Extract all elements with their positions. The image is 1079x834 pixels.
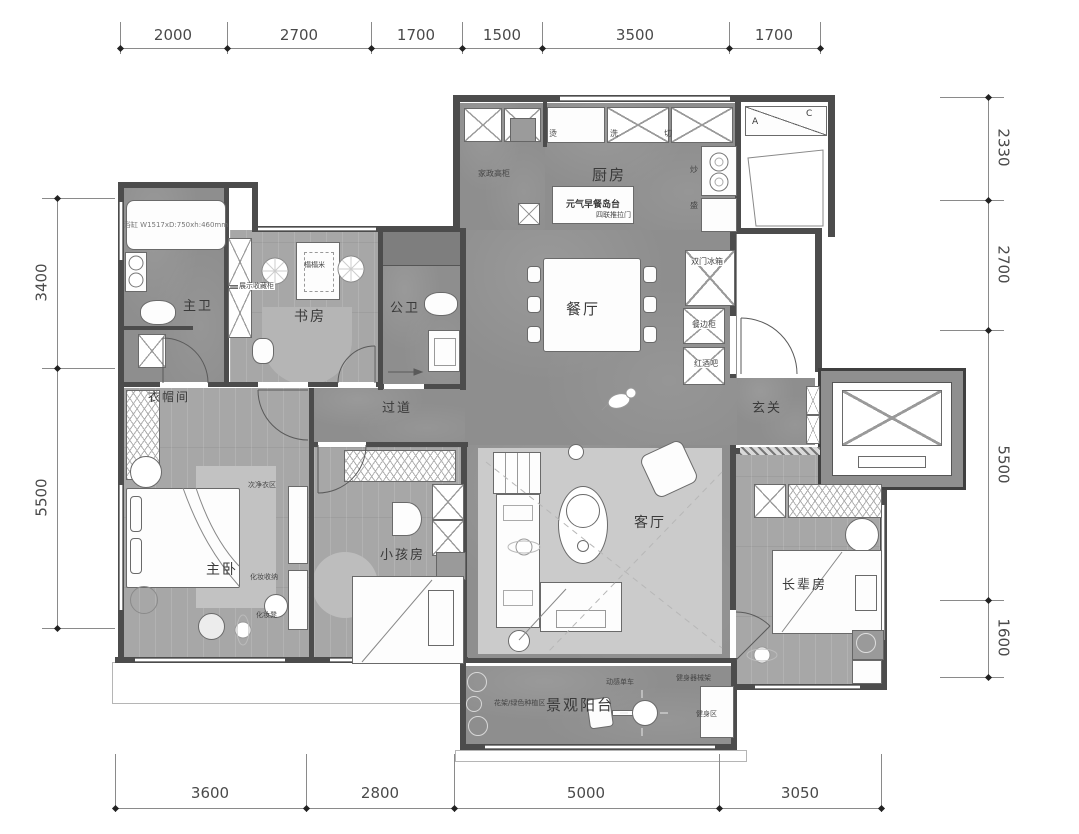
dim-ext <box>940 330 1004 331</box>
wall <box>815 232 822 372</box>
dim-ext <box>881 754 882 812</box>
door-gap <box>318 442 366 447</box>
dim-ext <box>115 754 116 812</box>
shoe-cabinet <box>806 415 820 444</box>
dim-value: 2000 <box>143 28 203 43</box>
dim-value: 2700 <box>269 28 329 43</box>
dim-ext <box>940 677 1004 678</box>
dim-value: 1500 <box>472 28 532 43</box>
bathtub-spec: 浴缸 W1517xD:750xh:460mm <box>124 222 228 229</box>
island-label: 元气早餐岛台 <box>566 201 620 210</box>
room-label-balcony: 景观阳台 <box>546 698 614 713</box>
room-label-elder-room: 长辈房 <box>782 579 827 592</box>
dresser <box>288 486 308 564</box>
dim-value: 2800 <box>350 786 410 801</box>
washer-box <box>464 108 502 142</box>
dim-tick <box>459 45 466 52</box>
dim-tick <box>54 625 61 632</box>
label-station-iron: 烫 <box>549 130 557 138</box>
label-ac-a: A <box>752 118 758 127</box>
dim-value: 1700 <box>744 28 804 43</box>
dim-tick <box>451 805 458 812</box>
kids-wardrobe <box>344 450 456 482</box>
wall <box>453 95 460 232</box>
elder-cabinet <box>754 484 786 518</box>
dim-tick <box>303 805 310 812</box>
study-chair <box>252 338 274 364</box>
dim-tick <box>985 197 992 204</box>
pillow <box>130 496 142 532</box>
dim-value: 5500 <box>996 435 1011 495</box>
plant <box>467 672 487 692</box>
display-cabinet <box>228 238 252 286</box>
dim-ext <box>719 754 720 812</box>
floor-plan-canvas: 2000 2700 1700 1500 3500 1700 3600 2800 … <box>0 0 1079 834</box>
window <box>258 227 376 231</box>
room-label-master-bedroom: 主卧 <box>206 563 238 577</box>
door-gap <box>730 316 736 374</box>
label-station-serve: 盛 <box>690 202 698 210</box>
wall <box>460 658 737 663</box>
dim-line <box>115 808 881 809</box>
room-label-foyer: 玄关 <box>752 402 782 415</box>
spin-bike-frame <box>612 710 634 716</box>
stove-counter <box>701 146 737 196</box>
room-label-dining: 餐厅 <box>566 302 600 317</box>
dim-ext <box>940 97 1004 98</box>
dim-tick <box>985 327 992 334</box>
dim-ext <box>940 600 1004 601</box>
fan-symbol <box>856 633 876 653</box>
entry-vestibule-floor <box>737 232 817 378</box>
label-wine-bar: 红酒吧 <box>693 360 719 368</box>
dim-tick <box>716 805 723 812</box>
toilet <box>424 292 458 316</box>
room-label-study: 书房 <box>294 310 326 324</box>
label-sliding-door: 四联推拉门 <box>596 212 631 219</box>
label-station-wash: 洗 <box>610 130 618 138</box>
shoe-cabinet <box>806 386 820 415</box>
plant <box>466 696 482 712</box>
dim-tick <box>112 805 119 812</box>
coffee-table-dot <box>577 540 589 552</box>
door-gap <box>384 384 424 389</box>
dim-line <box>57 198 58 628</box>
kitchen-counter <box>671 107 733 143</box>
tv-cabinet-top <box>493 452 541 494</box>
kids-cabinet <box>432 484 464 520</box>
kids-desk-chair <box>392 502 422 536</box>
dim-tick <box>817 45 824 52</box>
dim-value: 1600 <box>996 608 1011 668</box>
door-gap <box>160 382 208 387</box>
wall <box>735 228 822 234</box>
dining-chair <box>643 326 657 343</box>
room-label-cloakroom: 衣帽间 <box>148 391 190 403</box>
coffee-table-tray <box>566 494 600 528</box>
wall <box>378 230 383 390</box>
wall <box>309 388 314 660</box>
kids-pillow <box>428 590 454 646</box>
label-fitness-zone: 健身区 <box>696 711 717 718</box>
dining-chair <box>527 266 541 283</box>
elder-stool <box>845 518 879 552</box>
window <box>560 96 730 101</box>
dim-tick <box>54 195 61 202</box>
dim-tick <box>224 45 231 52</box>
dim-tick <box>539 45 546 52</box>
arc-floor-lamp-base <box>508 630 530 652</box>
wall <box>123 326 193 330</box>
floor-pouf <box>198 613 225 640</box>
wall <box>460 228 466 390</box>
label-station-cut: 切 <box>664 130 672 138</box>
wall <box>828 95 835 237</box>
room-label-kids-room: 小孩房 <box>380 549 425 562</box>
label-station-fry: 炒 <box>690 166 698 174</box>
lower-ledge <box>112 662 466 704</box>
room-label-kitchen: 厨房 <box>592 168 626 183</box>
pillow <box>130 538 142 574</box>
kids-cabinet <box>432 520 464 556</box>
door-gap <box>258 382 308 387</box>
dining-chair <box>643 266 657 283</box>
label-makeup-stool: 化妆凳 <box>256 612 277 619</box>
round-side-table <box>130 456 162 488</box>
spin-bike-wheel <box>632 700 658 726</box>
elevator-symbol <box>842 390 942 446</box>
label-makeup-storage: 化妆收纳 <box>250 574 278 581</box>
dim-value: 5500 <box>35 468 50 528</box>
dim-value: 1700 <box>386 28 446 43</box>
room-label-living-room: 客厅 <box>634 516 666 530</box>
bathtub: 浴缸 W1517xD:750xh:460mm <box>126 200 226 250</box>
dim-value: 3500 <box>605 28 665 43</box>
wall <box>118 182 258 188</box>
deco-vase <box>568 444 584 460</box>
door-gap <box>730 610 736 658</box>
duct-shaft <box>380 230 462 266</box>
elder-wardrobe <box>788 484 882 518</box>
wall <box>252 182 258 230</box>
window <box>135 658 285 662</box>
sofa-cushion <box>556 610 606 628</box>
window <box>755 685 860 689</box>
label-sideboard: 餐边柜 <box>691 321 717 329</box>
dim-value: 3600 <box>180 786 240 801</box>
window <box>485 745 715 749</box>
dim-tick <box>726 45 733 52</box>
elevator-sill <box>858 456 926 468</box>
label-tatami: 榻榻米 <box>304 262 325 269</box>
wall <box>378 226 460 232</box>
room-label-master-bath: 主卫 <box>183 300 213 313</box>
label-ac-c: C <box>806 110 812 119</box>
dim-value: 3400 <box>35 253 50 313</box>
door-gap <box>338 382 376 387</box>
toilet <box>140 300 176 325</box>
dim-value: 2700 <box>996 235 1011 295</box>
dining-chair <box>527 326 541 343</box>
dim-tick <box>985 94 992 101</box>
dim-value: 3050 <box>770 786 830 801</box>
tatami-inner <box>304 252 334 292</box>
dim-tick <box>878 805 885 812</box>
dim-tick <box>54 365 61 372</box>
dim-line <box>988 97 989 677</box>
threshold-hatch <box>740 447 820 455</box>
floor-drain-tile <box>518 203 540 225</box>
hallway-floor <box>312 388 465 445</box>
label-clothes-zone: 次净衣区 <box>248 482 276 489</box>
makeup-drawers <box>288 570 308 630</box>
dim-tick <box>985 597 992 604</box>
label-planting: 花架/绿色种植区 <box>494 700 545 707</box>
dim-value: 5000 <box>556 786 616 801</box>
room-label-public-bath: 公卫 <box>390 302 420 315</box>
dim-tick <box>368 45 375 52</box>
dining-chair <box>643 296 657 313</box>
elder-pillow <box>855 575 877 611</box>
appliance-box <box>510 118 536 142</box>
window <box>119 202 123 260</box>
dim-tick <box>117 45 124 52</box>
dining-chair <box>527 296 541 313</box>
bath-vanity <box>125 252 147 292</box>
basin-inner <box>434 338 456 366</box>
dim-ext <box>940 200 1004 201</box>
label-spin-bike: 动感单车 <box>606 679 634 686</box>
dim-value: 2330 <box>996 118 1011 178</box>
label-fridge: 双门冰箱 <box>690 258 724 266</box>
display-cabinet <box>228 288 252 338</box>
dim-ext <box>306 754 307 812</box>
elder-lower-cabinet <box>852 660 882 684</box>
dim-tick <box>985 674 992 681</box>
label-housekeeping-cabinet: 家政高柜 <box>478 170 510 178</box>
plant <box>468 716 488 736</box>
room-label-hallway: 过道 <box>382 402 412 415</box>
window <box>119 485 123 610</box>
label-fitness-rack: 健身器械架 <box>676 675 711 682</box>
label-display-cabinet: 展示收藏柜 <box>238 283 275 290</box>
deco-plant <box>130 586 158 614</box>
balcony-ledge <box>455 750 747 762</box>
desk-item <box>503 590 533 606</box>
dim-ext <box>454 754 455 812</box>
desk-item <box>503 505 533 521</box>
shower-tray <box>138 334 166 368</box>
serve-counter <box>701 198 737 232</box>
